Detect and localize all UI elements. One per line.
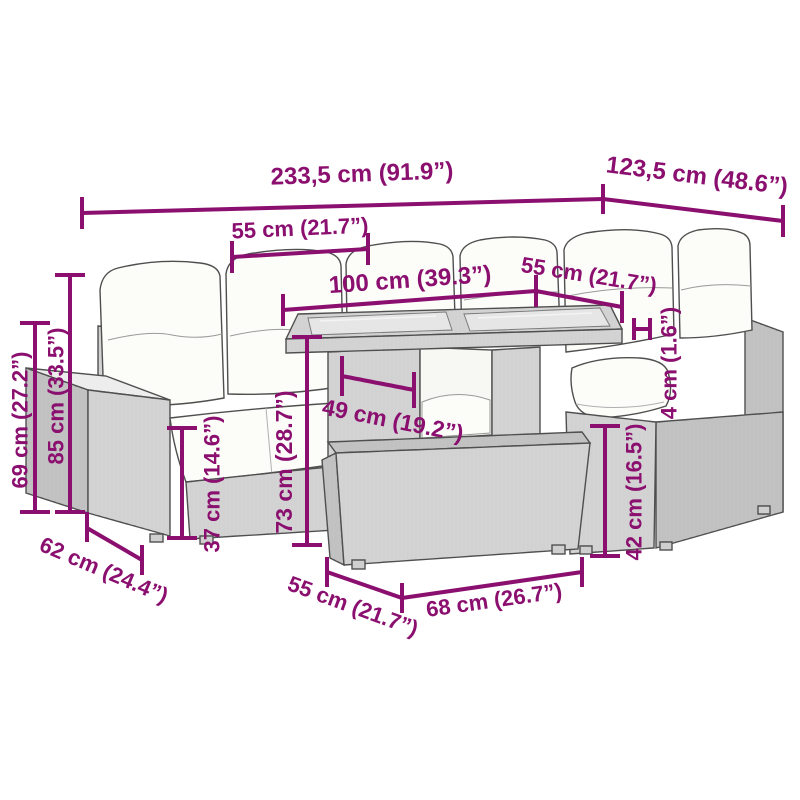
dimension-label-arm-height: 69 cm (27.2”) [8, 352, 33, 489]
furniture-line-art: 233,5 cm (91.9”) 123,5 cm (48.6”) 55 cm … [0, 0, 800, 800]
left-armrest-front [88, 390, 170, 536]
dimension-label-cushion-thickness: 4 cm (1.6”) [657, 307, 682, 420]
dimension-label-seat-width-left: 55 cm (21.7”) [231, 213, 369, 244]
back-pillow [678, 229, 752, 338]
dimension-label-seat-depth: 62 cm (24.4”) [36, 532, 172, 609]
sofa-foot [660, 542, 672, 550]
dimension-label-seat-height: 37 cm (14.6”) [200, 416, 225, 553]
sofa-foot [758, 506, 770, 514]
dimension-label-ottoman-height: 42 cm (16.5”) [622, 424, 647, 561]
dimension-label-back-height: 85 cm (33.5”) [44, 328, 69, 465]
dimension-label-total-depth: 123,5 cm (48.6”) [605, 151, 790, 200]
ottoman-foot [552, 545, 565, 554]
sofa-foot [580, 546, 592, 554]
ottoman [322, 432, 590, 569]
dimension-diagram-canvas: 233,5 cm (91.9”) 123,5 cm (48.6”) 55 cm … [0, 0, 800, 800]
sofa-foot [150, 534, 163, 542]
ottoman-foot [352, 560, 365, 569]
dimension-label-table-height: 73 cm (28.7”) [271, 390, 297, 533]
dimension-label-total-width: 233,5 cm (91.9”) [270, 157, 454, 190]
right-base-side [656, 412, 783, 548]
